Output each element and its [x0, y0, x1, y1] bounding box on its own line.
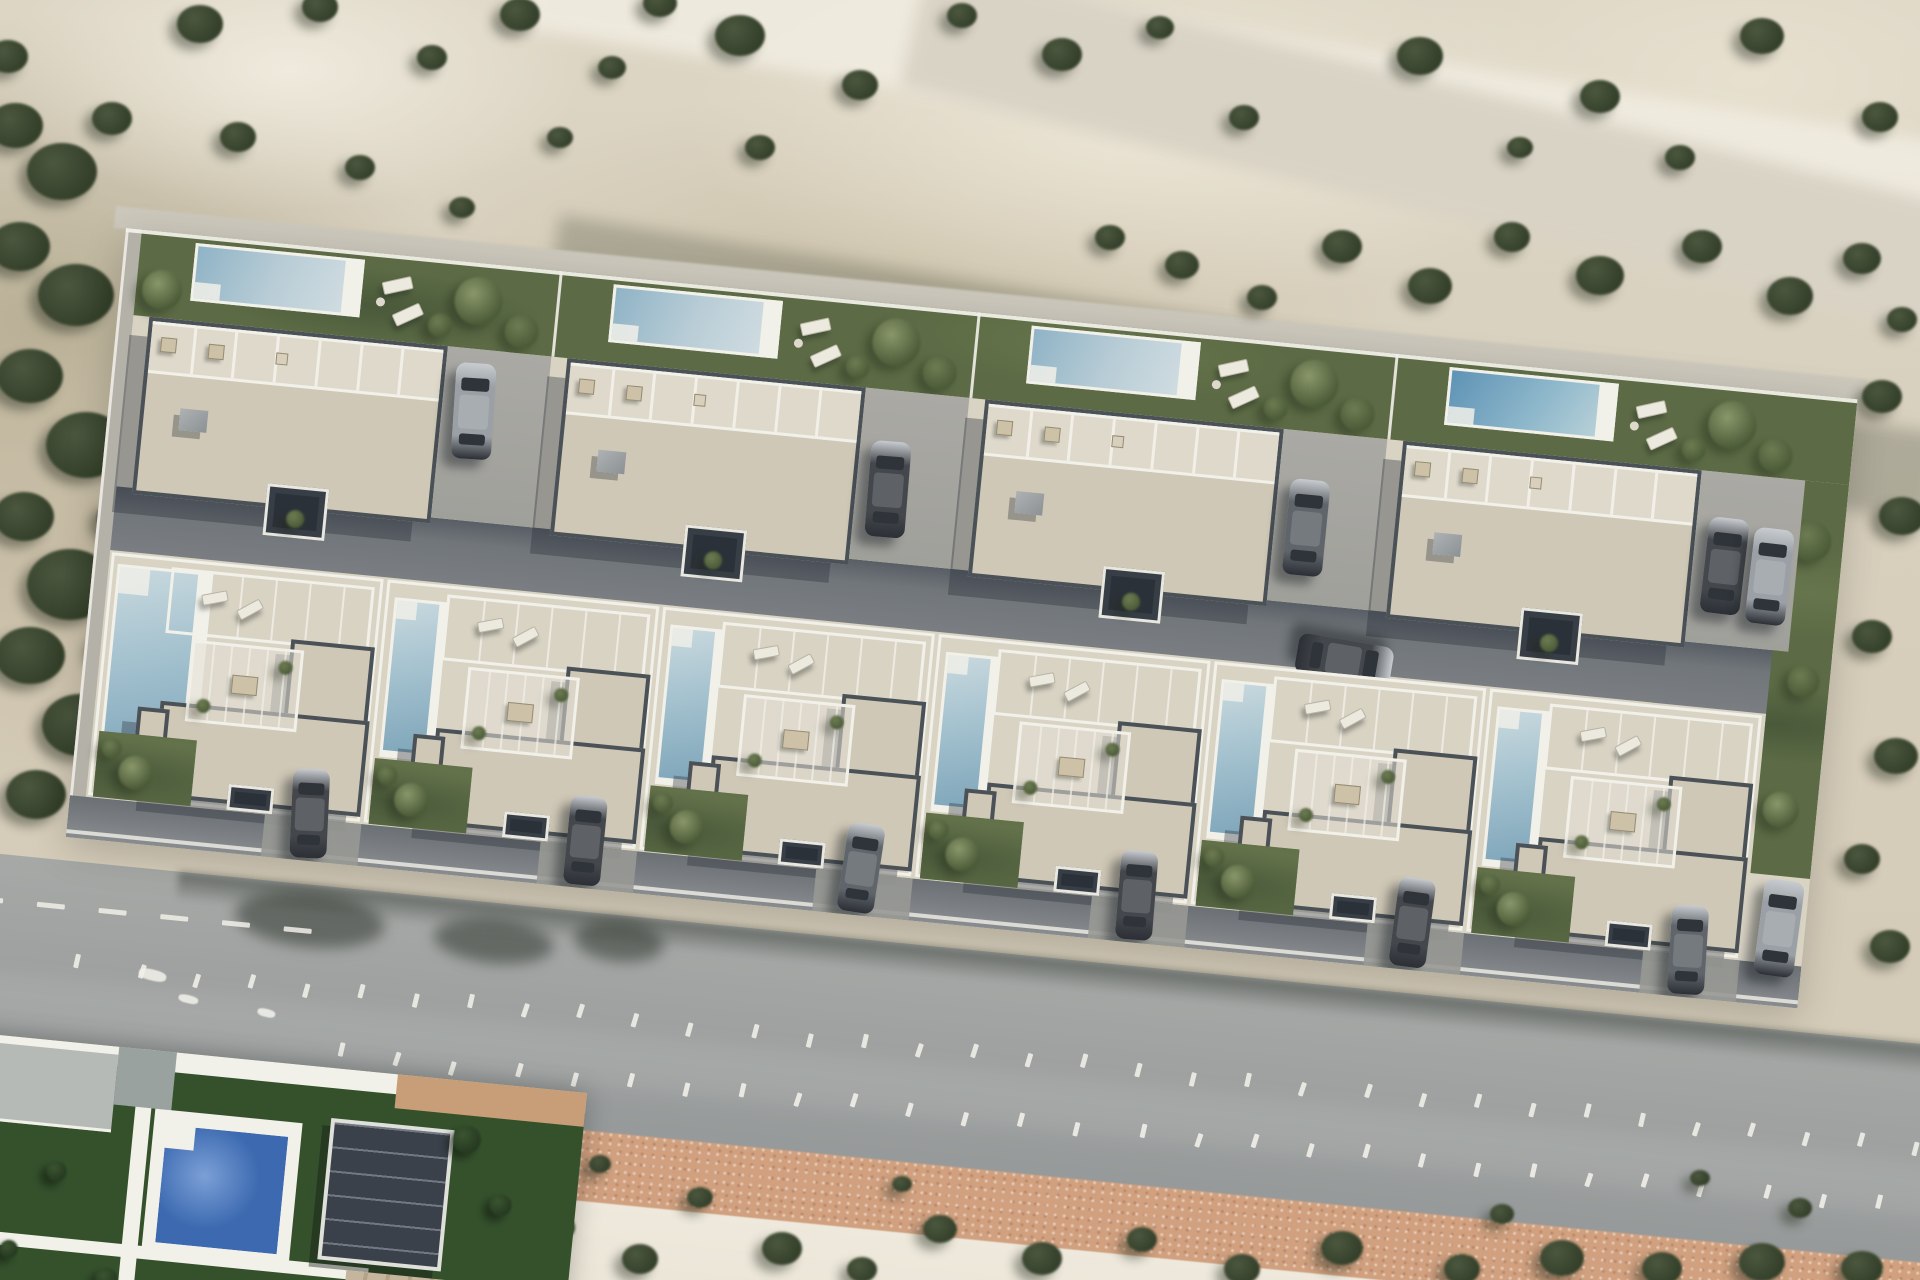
pool-step: [1029, 365, 1056, 383]
pool-step: [672, 628, 694, 648]
sun-lounger: [753, 645, 781, 660]
pergola-beam: [1485, 456, 1493, 502]
garden-palm: [1203, 846, 1225, 868]
pergola-beam: [1087, 732, 1096, 808]
car-roof: [1752, 559, 1786, 597]
garden-palm: [1380, 769, 1395, 784]
roadside-bush: [687, 1187, 713, 1208]
terrace-table: [275, 352, 288, 365]
villa-lot: [639, 607, 935, 877]
pool-step: [1223, 682, 1245, 702]
pool-step: [164, 1124, 196, 1151]
roadside-bush: [1690, 1170, 1710, 1186]
driveway: [849, 388, 969, 569]
dining-set: [1058, 756, 1086, 777]
pergola-beam: [304, 584, 312, 644]
car-roof: [295, 798, 325, 831]
roadside-bush: [1490, 1204, 1514, 1224]
terrace-seat: [160, 337, 177, 354]
car-windshield: [1294, 494, 1323, 509]
roadside-bush: [622, 1244, 658, 1274]
entrance-patio: [778, 838, 826, 868]
parked-car: [1115, 849, 1159, 941]
terrace-seat: [625, 385, 642, 402]
pergola-beam: [649, 374, 657, 420]
entrance-floor: [234, 791, 267, 806]
pergola-beam: [1165, 669, 1173, 729]
garden-palm: [928, 819, 950, 841]
garden-palm: [652, 792, 674, 814]
villa-lot: [1191, 661, 1487, 931]
car-windshield: [1402, 891, 1429, 906]
pergola-beam: [1233, 431, 1241, 477]
courtyard-pergola: [736, 694, 856, 787]
garden-palm: [1656, 797, 1671, 812]
parked-car: [289, 768, 330, 859]
courtyard-pergola: [460, 667, 580, 760]
pergola-beam: [732, 382, 740, 428]
pool-water: [193, 246, 345, 312]
terrace-seat: [1414, 461, 1431, 478]
car-rear-window: [1762, 949, 1789, 963]
terrace-seat: [996, 420, 1013, 437]
pool-step: [947, 655, 969, 675]
pergola-beam: [1610, 469, 1618, 515]
villa-lot: [364, 579, 660, 849]
roadside-bush: [923, 1215, 957, 1243]
roadside-bush: [1642, 1252, 1682, 1280]
terrace-seat: [1043, 426, 1060, 443]
car-windshield: [298, 783, 325, 796]
solar-panels: [317, 1118, 454, 1272]
entrance-patio: [1053, 866, 1101, 896]
dining-set: [782, 729, 810, 750]
car-rear-window: [1753, 598, 1780, 611]
garden-palm: [1219, 863, 1256, 900]
courtyard-pergola: [1012, 721, 1132, 814]
pergola-beam: [1568, 465, 1576, 511]
car-roof: [457, 394, 490, 430]
car-roof: [1289, 510, 1323, 547]
car-rear-window: [1674, 971, 1698, 982]
roof-ac-unit: [1432, 532, 1462, 557]
car-rear-window: [872, 511, 898, 524]
complex-tree: [489, 1193, 513, 1217]
pool-step: [396, 601, 418, 621]
car-rear-window: [459, 433, 485, 445]
front-garden: [920, 813, 1024, 888]
pergola-beam: [1407, 693, 1415, 753]
garden-palm: [1479, 874, 1501, 896]
pool-water: [1210, 682, 1267, 835]
car-windshield: [574, 809, 601, 823]
pergola-beam: [260, 650, 269, 726]
roof-ac-unit: [1014, 491, 1044, 516]
parked-car: [451, 362, 497, 460]
car-rear-window: [1309, 642, 1324, 669]
pergola-beam: [1648, 717, 1656, 777]
car-windshield: [461, 378, 490, 392]
entrance-patio: [262, 483, 329, 541]
car-roof: [845, 851, 878, 887]
garden-palm: [1105, 742, 1120, 757]
garden-palm: [278, 660, 293, 675]
building-gray: [0, 1040, 118, 1132]
car-roof: [1121, 879, 1152, 913]
pergola-beam: [190, 328, 198, 374]
entrance-floor: [785, 846, 818, 861]
building-beige: [340, 1270, 567, 1280]
complex-tree: [94, 1267, 118, 1280]
courtyard-pergola: [1287, 749, 1407, 842]
courtyard-pergola: [1563, 776, 1683, 869]
pergola-beam: [1682, 720, 1690, 780]
pergola-beam: [1131, 666, 1139, 726]
roadside-bush: [1540, 1240, 1584, 1276]
pool-water: [659, 628, 716, 781]
car-roof: [871, 472, 904, 509]
car-rear-window: [571, 861, 596, 873]
entrance-patio: [226, 784, 274, 814]
sun-lounger: [1304, 699, 1332, 714]
pool-water: [611, 288, 763, 354]
roadside-bush: [892, 1176, 912, 1192]
car-windshield: [1713, 532, 1742, 548]
dining-set: [231, 675, 259, 696]
pergola-beam: [314, 341, 322, 387]
pergola-beam: [1192, 427, 1200, 473]
pergola-beam: [1444, 452, 1452, 498]
roof-ac-unit: [596, 450, 626, 475]
sun-lounger: [1579, 727, 1607, 742]
pool-step: [193, 282, 220, 300]
pool-step: [1498, 710, 1520, 730]
pergola-beam: [1373, 690, 1381, 750]
sun-lounger: [477, 618, 505, 633]
entrance-floor: [1061, 873, 1094, 888]
pergola-beam: [1716, 724, 1724, 784]
front-garden: [93, 731, 197, 806]
terrace-table: [693, 394, 706, 407]
pool-step: [1447, 406, 1474, 424]
pergola-beam: [1651, 473, 1659, 519]
roadside-bush: [589, 1155, 611, 1173]
pergola-beam: [546, 608, 554, 668]
pergola-beam: [889, 642, 897, 702]
pool-water: [1447, 370, 1599, 436]
front-garden: [1471, 867, 1575, 942]
pergola-beam: [1638, 786, 1647, 862]
car-windshield: [851, 836, 878, 851]
car-roof: [1762, 910, 1797, 948]
pergola-beam: [535, 677, 544, 753]
pergola-beam: [1097, 662, 1105, 722]
terrace-table: [1529, 476, 1542, 489]
entrance-patio: [1516, 607, 1583, 665]
entrance-patio: [1098, 566, 1165, 624]
pergola-beam: [855, 638, 863, 698]
pergola-beam: [608, 370, 616, 416]
pool-water: [383, 601, 440, 754]
terrace-table: [1111, 435, 1124, 448]
garden-palm: [668, 809, 705, 846]
pergola-beam: [774, 386, 782, 432]
dining-set: [1609, 811, 1637, 832]
pergola-beam: [397, 349, 405, 395]
parked-car: [1753, 878, 1805, 978]
roadside-bush: [1444, 1254, 1480, 1280]
pergola-beam: [1362, 759, 1371, 835]
garden-palm: [101, 737, 123, 759]
roadside-bush: [1224, 1254, 1260, 1280]
car-windshield: [1768, 894, 1797, 910]
car-windshield: [1362, 650, 1379, 680]
villa-lot: [1466, 689, 1762, 959]
car-roof: [1673, 934, 1703, 968]
car-windshield: [1758, 542, 1787, 558]
car-roof: [570, 824, 601, 859]
dining-set: [506, 702, 534, 723]
terrace-seat: [578, 378, 595, 395]
roadside-bush: [1788, 1198, 1812, 1218]
front-garden: [1195, 840, 1299, 915]
roadside-bush: [847, 1257, 877, 1280]
roadside-bush: [1321, 1231, 1363, 1265]
car-rear-window: [1290, 549, 1317, 562]
parked-car: [1667, 904, 1710, 995]
front-garden: [369, 758, 473, 833]
complex-tree: [46, 1160, 68, 1182]
pergola-beam: [821, 635, 829, 695]
complex-tree: [452, 1124, 483, 1155]
dining-set: [1333, 784, 1361, 805]
garden-palm: [829, 715, 844, 730]
pergola-beam: [338, 587, 346, 647]
entrance-floor: [510, 819, 543, 834]
courtyard-pergola: [185, 640, 305, 733]
terrace-seat: [1461, 468, 1478, 485]
car-rear-window: [1708, 587, 1735, 600]
aerial-development-render: [0, 0, 1920, 1280]
pool-water: [1485, 710, 1542, 863]
car-windshield: [876, 456, 905, 471]
pergola-beam: [811, 704, 820, 780]
pergola-beam: [270, 580, 278, 640]
entrance-patio: [1604, 920, 1652, 950]
car-rear-window: [1396, 942, 1421, 955]
garden-palm: [392, 781, 429, 818]
roadside-bush: [1841, 1251, 1883, 1280]
villa-lot: [915, 634, 1211, 904]
entrance-patio: [1329, 893, 1377, 923]
building-gray-annex: [114, 1047, 177, 1110]
car-windshield: [1676, 919, 1703, 932]
pool-water: [934, 655, 991, 808]
car-roof: [1396, 906, 1428, 942]
garden-palm: [1495, 890, 1532, 927]
car-rear-window: [296, 834, 320, 845]
sun-lounger: [1028, 672, 1056, 687]
garden-palm: [944, 836, 981, 873]
garden-palm: [117, 754, 154, 791]
roof-ac-unit: [178, 408, 208, 433]
garden-palm: [553, 687, 568, 702]
car-rear-window: [1122, 916, 1147, 928]
pergola-beam: [356, 345, 364, 391]
sun-lounger: [201, 590, 229, 605]
pergola-beam: [1026, 411, 1034, 457]
pergola-beam: [231, 332, 239, 378]
pergola-beam: [815, 390, 823, 436]
pergola-beam: [1440, 696, 1448, 756]
pool-step: [611, 323, 638, 341]
pergola-beam: [613, 614, 621, 674]
entrance-patio: [502, 811, 550, 841]
parked-car: [864, 440, 912, 539]
pergola-beam: [580, 611, 588, 671]
front-garden: [644, 785, 748, 860]
car-roof: [1707, 548, 1741, 586]
roadside-bush: [1739, 1243, 1785, 1280]
pergola-beam: [1150, 423, 1158, 469]
villa-lot: [88, 552, 384, 822]
terrace-seat: [208, 344, 225, 361]
pool-water: [1029, 329, 1181, 395]
pergola-beam: [1067, 415, 1075, 461]
car-rear-window: [845, 888, 870, 901]
entrance-patio: [680, 525, 747, 583]
entrance-floor: [1336, 901, 1369, 916]
roadside-bush: [1022, 1242, 1062, 1275]
entrance-floor: [1612, 928, 1645, 943]
garden-palm: [376, 764, 398, 786]
roadside-bush: [1127, 1227, 1157, 1252]
roadside-bush: [762, 1232, 802, 1265]
car-windshield: [1125, 864, 1152, 878]
pool-step: [118, 567, 150, 596]
